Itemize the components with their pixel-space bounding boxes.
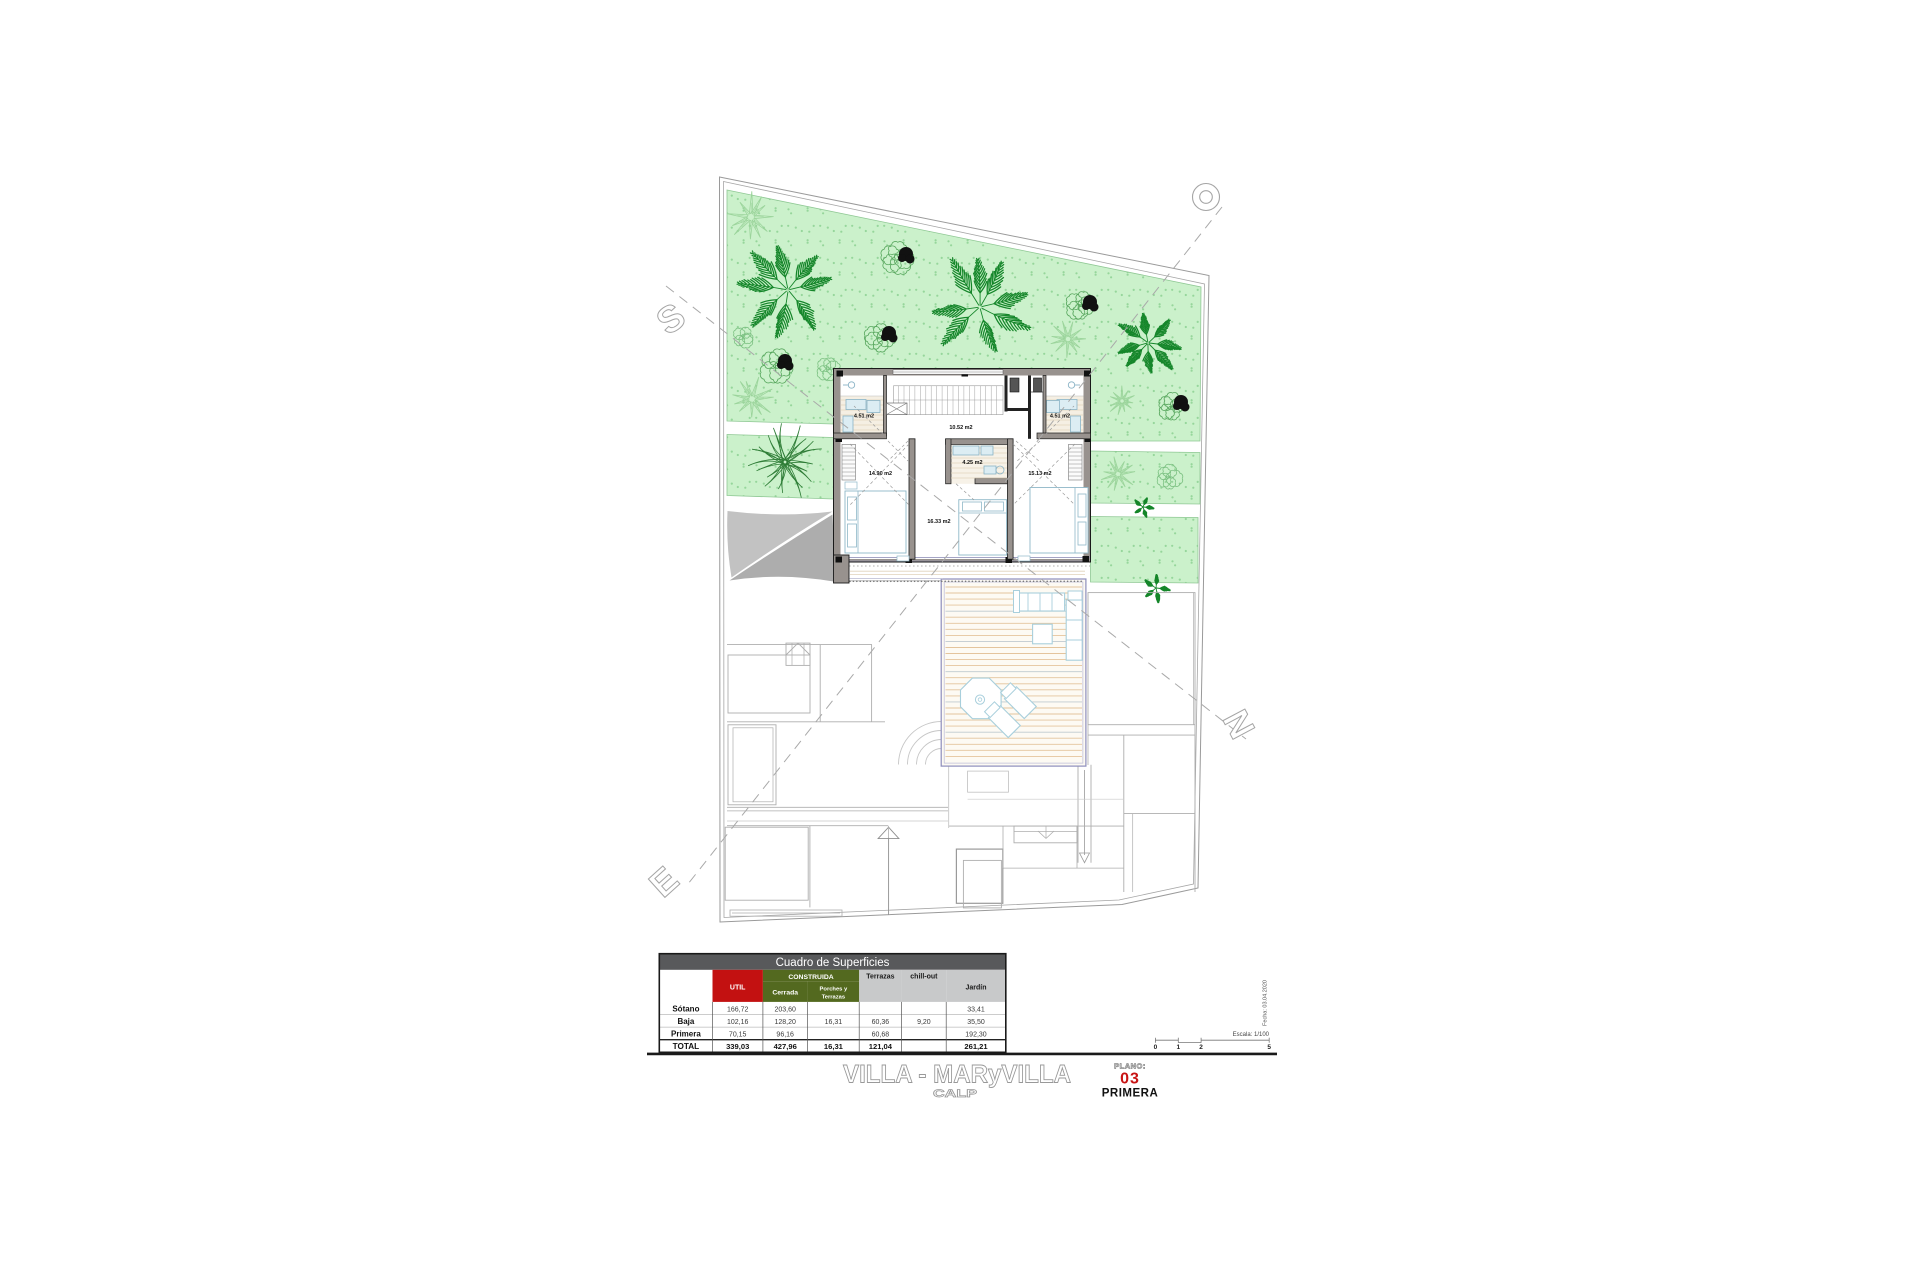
svg-text:166,72: 166,72 (727, 1007, 749, 1014)
svg-text:96,16: 96,16 (776, 1032, 794, 1039)
svg-text:Sótano: Sótano (672, 1005, 699, 1014)
svg-text:60,36: 60,36 (872, 1019, 890, 1026)
svg-text:0: 0 (1154, 1044, 1158, 1051)
svg-text:15.13 m2: 15.13 m2 (1028, 471, 1051, 477)
svg-text:121,04: 121,04 (869, 1042, 893, 1051)
svg-text:14.90 m2: 14.90 m2 (869, 471, 892, 477)
svg-text:192,30: 192,30 (965, 1032, 987, 1039)
svg-text:TOTAL: TOTAL (673, 1042, 700, 1051)
svg-text:60,68: 60,68 (872, 1032, 890, 1039)
svg-text:Terrazas: Terrazas (822, 995, 845, 1001)
svg-text:Primera: Primera (671, 1030, 701, 1039)
svg-text:03: 03 (1120, 1071, 1140, 1088)
svg-text:chill-out: chill-out (910, 974, 938, 981)
svg-text:128,20: 128,20 (774, 1019, 796, 1026)
svg-text:CONSTRUIDA: CONSTRUIDA (788, 974, 833, 981)
svg-text:4.25 m2: 4.25 m2 (962, 460, 982, 466)
svg-text:VILLA - MARyVILLA: VILLA - MARyVILLA (843, 1061, 1071, 1089)
svg-text:9,20: 9,20 (917, 1019, 931, 1026)
svg-text:16,31: 16,31 (825, 1019, 843, 1026)
svg-text:261,21: 261,21 (964, 1042, 988, 1051)
svg-text:427,96: 427,96 (774, 1042, 797, 1051)
svg-text:33,41: 33,41 (967, 1007, 985, 1014)
svg-text:CALP: CALP (933, 1088, 977, 1100)
svg-text:35,50: 35,50 (967, 1019, 985, 1026)
svg-text:16.33 m2: 16.33 m2 (927, 519, 950, 525)
svg-text:Baja: Baja (677, 1017, 694, 1026)
svg-text:4.51 m2: 4.51 m2 (854, 414, 874, 420)
svg-text:UTIL: UTIL (730, 985, 746, 992)
svg-text:5: 5 (1267, 1044, 1271, 1051)
svg-text:Terrazas: Terrazas (866, 974, 894, 981)
svg-text:1: 1 (1176, 1044, 1180, 1051)
svg-text:339,03: 339,03 (726, 1042, 749, 1051)
svg-text:Cerrada: Cerrada (772, 990, 798, 997)
svg-text:203,60: 203,60 (774, 1007, 796, 1014)
svg-text:Cuadro de Superficies: Cuadro de Superficies (776, 957, 890, 969)
svg-text:Fecha: 03.04.2020: Fecha: 03.04.2020 (1263, 980, 1269, 1026)
svg-text:16,31: 16,31 (824, 1042, 844, 1051)
svg-text:4.51 m2: 4.51 m2 (1050, 414, 1070, 420)
svg-text:PRIMERA: PRIMERA (1102, 1087, 1159, 1099)
svg-text:Jardín: Jardín (965, 985, 986, 992)
svg-text:102,16: 102,16 (727, 1019, 749, 1026)
svg-text:PLANO:: PLANO: (1114, 1061, 1146, 1070)
svg-text:Escala: 1/100: Escala: 1/100 (1233, 1032, 1270, 1038)
svg-text:10.52 m2: 10.52 m2 (949, 425, 972, 431)
svg-text:Porches y: Porches y (820, 987, 848, 993)
svg-text:2: 2 (1199, 1044, 1203, 1051)
svg-text:70,15: 70,15 (729, 1032, 747, 1039)
